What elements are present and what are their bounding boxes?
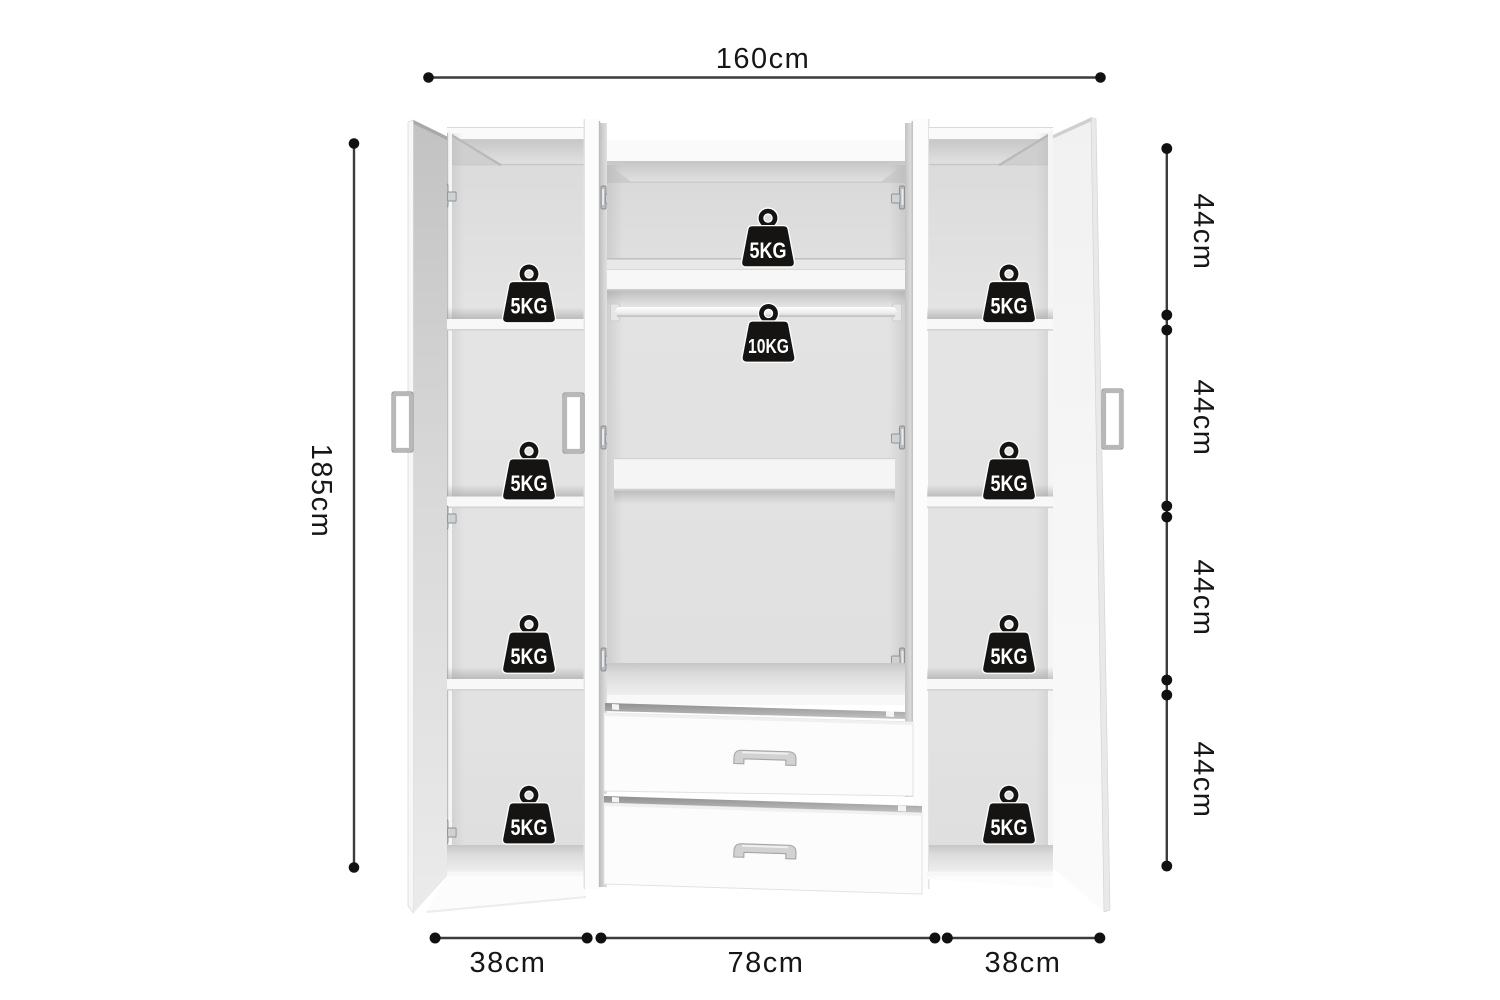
svg-text:185cm: 185cm <box>305 444 337 539</box>
svg-text:78cm: 78cm <box>728 947 805 979</box>
svg-text:44cm: 44cm <box>1187 560 1219 637</box>
svg-text:160cm: 160cm <box>716 43 811 75</box>
svg-text:38cm: 38cm <box>985 947 1062 979</box>
svg-text:38cm: 38cm <box>470 947 547 979</box>
svg-text:44cm: 44cm <box>1187 380 1219 457</box>
svg-text:44cm: 44cm <box>1187 194 1219 271</box>
svg-text:44cm: 44cm <box>1187 742 1219 819</box>
